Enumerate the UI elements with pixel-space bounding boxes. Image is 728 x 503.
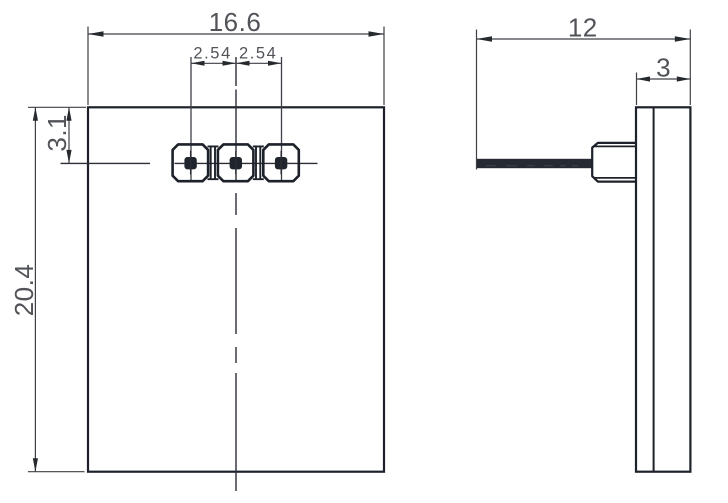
svg-text:2.54: 2.54 — [239, 45, 278, 63]
svg-text:3: 3 — [656, 53, 670, 83]
svg-text:12: 12 — [568, 13, 598, 43]
svg-text:3.1: 3.1 — [42, 114, 72, 152]
svg-text:16.6: 16.6 — [209, 7, 262, 37]
svg-text:20.4: 20.4 — [9, 264, 39, 317]
svg-text:2.54: 2.54 — [193, 45, 232, 63]
